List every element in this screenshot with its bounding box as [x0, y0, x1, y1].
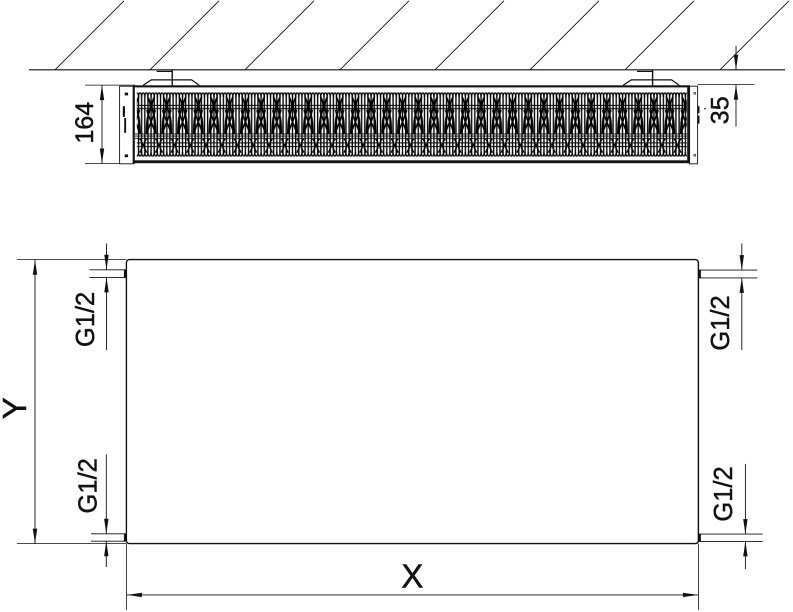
svg-text:G1/2: G1/2	[707, 295, 735, 350]
svg-text:35: 35	[706, 96, 734, 124]
svg-text:G1/2: G1/2	[710, 466, 738, 521]
svg-text:G1/2: G1/2	[74, 458, 102, 513]
svg-text:G1/2: G1/2	[72, 292, 100, 347]
svg-text:Y: Y	[0, 397, 33, 419]
svg-text:164: 164	[71, 102, 99, 144]
svg-text:X: X	[401, 558, 423, 595]
